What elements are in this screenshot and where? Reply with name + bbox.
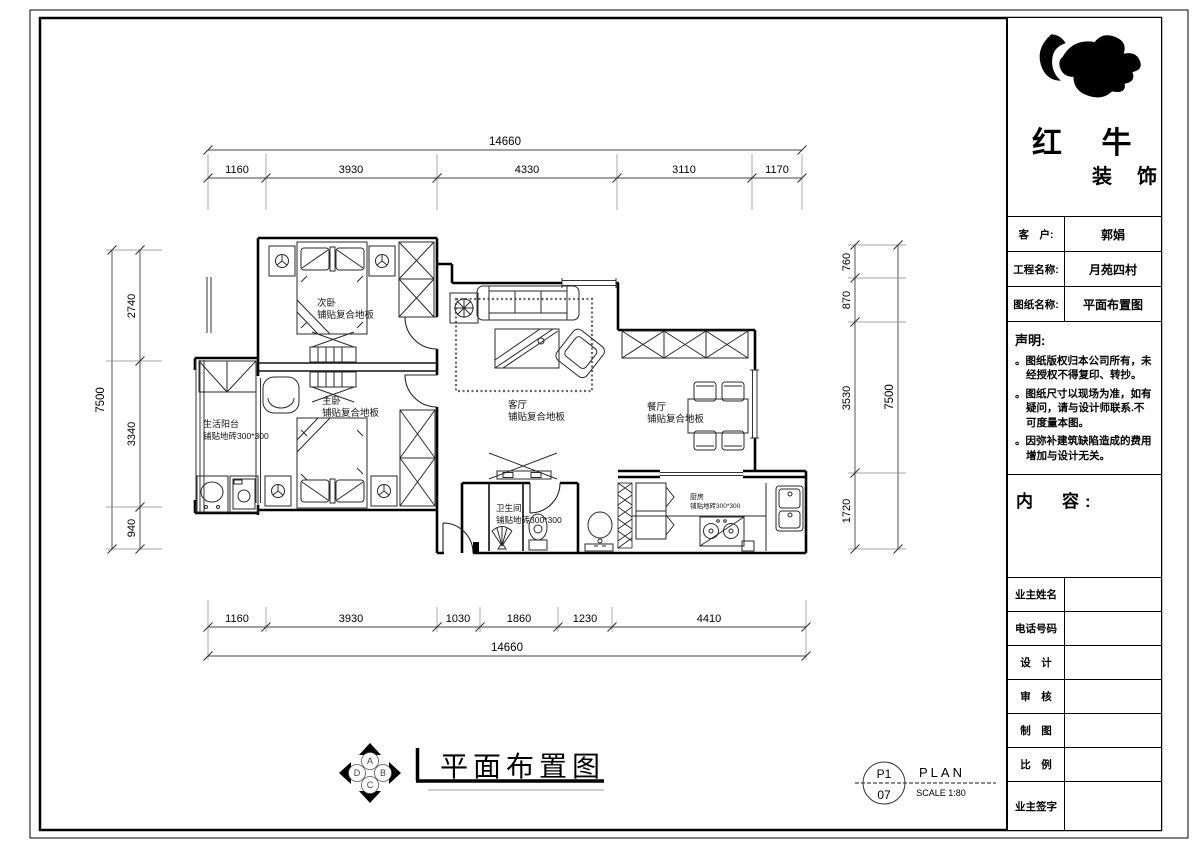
- tv-cabinet: [489, 453, 557, 479]
- dimension-lines: [106, 146, 906, 661]
- signature-row-scale: 比 例: [1008, 748, 1161, 782]
- dim-right-1: 870: [841, 291, 853, 309]
- kitchen-sink: [776, 486, 803, 531]
- field-customer-value: 郭娟: [1065, 217, 1161, 251]
- dining-chair: [694, 431, 716, 450]
- room-floor-bedroom2: 铺贴复合地板: [317, 309, 375, 321]
- dim-top-0: 1160: [225, 164, 249, 176]
- drawing-title-block: 平面布置图: [416, 748, 605, 790]
- signature-row-value: [1065, 680, 1161, 713]
- signature-row-phone: 电话号码: [1008, 612, 1161, 646]
- room-label-living: 客厅: [508, 399, 528, 411]
- dim-top-3: 3110: [672, 164, 696, 176]
- title-block: 红 牛 装 饰 客 户: 郭娟 工程名称: 月苑四村 图纸名称: 平面布置图 声…: [1006, 18, 1161, 830]
- tub-chair: [263, 377, 299, 413]
- signature-row-value: [1065, 612, 1161, 645]
- fridge: [636, 483, 674, 539]
- brand-subname: 装 饰: [1092, 160, 1167, 189]
- nightstand: [371, 476, 397, 506]
- content-section: 内 容:: [1008, 475, 1161, 578]
- bed-double: [297, 418, 367, 508]
- kitchen-fixtures: [632, 483, 803, 551]
- sheet-code: P1: [877, 767, 892, 781]
- statement-section: 声明: 。图纸版权归本公司所有，未经授权不得复印、转抄。 。图纸尺寸以现场为准，…: [1008, 322, 1161, 475]
- room-floor-living: 铺贴复合地板: [508, 411, 566, 423]
- dim-right-total: 7500: [884, 384, 896, 410]
- dim-bottom-total: 14660: [491, 642, 523, 654]
- dim-bottom-1: 3930: [339, 613, 363, 625]
- dining-furniture: [622, 331, 748, 450]
- nightstand: [369, 246, 395, 276]
- field-project-label: 工程名称:: [1008, 252, 1065, 286]
- compass-icon: A B C D: [339, 743, 401, 803]
- hall-washbasin: [588, 512, 612, 546]
- dining-window: [750, 370, 759, 438]
- room-label-balcony: 生活阳台: [203, 418, 239, 429]
- armchair: [554, 327, 607, 380]
- dimension-texts: 14660 1160 3930 4330 3110 1170 1160 3930…: [95, 136, 896, 654]
- dim-top-total: 14660: [489, 136, 521, 148]
- statement-heading: 声明:: [1015, 330, 1154, 349]
- dim-right-2: 3530: [841, 386, 853, 410]
- dim-bottom-2: 1030: [446, 613, 470, 625]
- wardrobe: [400, 410, 435, 506]
- shower-head: [492, 526, 512, 549]
- sofa: [477, 286, 579, 320]
- dim-left-total: 7500: [95, 387, 107, 413]
- room-label-kitchen: 厨房: [690, 492, 704, 501]
- entry-door: [443, 523, 473, 553]
- field-project-value: 月苑四村: [1065, 252, 1161, 286]
- compass-letter-a: A: [367, 756, 373, 766]
- room-floor-dining: 铺贴复合地板: [647, 413, 705, 425]
- dining-chair: [722, 431, 744, 450]
- hatched-column: [618, 483, 632, 548]
- field-customer-label: 客 户:: [1008, 217, 1065, 251]
- statement-item: 。因弥补建筑缺陷造成的费用增加与设计无关。: [1015, 434, 1154, 463]
- brand-name: 红 牛: [1032, 118, 1148, 162]
- desk-pair: [310, 332, 356, 402]
- sheet-page: 07: [877, 788, 891, 802]
- dim-left-2: 940: [126, 519, 138, 537]
- signature-row-drafter: 制 图: [1008, 714, 1161, 748]
- nightstand: [265, 476, 291, 506]
- dim-bottom-4: 1230: [573, 613, 597, 625]
- floor-mat: [585, 544, 613, 551]
- dim-bottom-5: 4410: [697, 613, 721, 625]
- field-sheetname-value: 平面布置图: [1065, 287, 1161, 321]
- nightstand: [269, 246, 295, 276]
- partition-walls: [258, 363, 523, 551]
- bedroom1-furniture: [263, 377, 435, 508]
- dim-top-1: 3930: [339, 164, 363, 176]
- laundry-sink: [197, 476, 228, 512]
- dining-chair: [722, 382, 744, 401]
- field-project: 工程名称: 月苑四村: [1008, 252, 1161, 287]
- signature-row-value: [1065, 714, 1161, 747]
- dimension-ticks: [108, 146, 903, 661]
- statement-item: 。图纸版权归本公司所有，未经授权不得复印、转抄。: [1015, 354, 1154, 383]
- side-table-plant: [450, 293, 478, 323]
- room-floor-balcony: 铺贴地砖300*300: [203, 431, 269, 441]
- room-label-dining: 餐厅: [647, 401, 667, 413]
- signature-row-value: [1065, 748, 1161, 781]
- signature-row-value: [1065, 782, 1161, 831]
- washing-machine: [230, 476, 258, 512]
- dim-right-0: 760: [841, 253, 853, 271]
- field-sheetname: 图纸名称: 平面布置图: [1008, 287, 1161, 322]
- balcony-cabinet: [199, 361, 256, 392]
- compass-letter-d: D: [354, 768, 361, 778]
- room-floor-bedroom1: 铺贴复合地板: [322, 407, 380, 419]
- stove: [700, 517, 744, 546]
- dim-top-2: 4330: [515, 164, 539, 176]
- wardrobe: [399, 242, 434, 317]
- statement-item: 。图纸尺寸以现场为准，如有疑问，请与设计师联系.不可度量本图。: [1015, 387, 1154, 430]
- dim-left-1: 3340: [126, 422, 138, 446]
- drawing-title: 平面布置图: [440, 751, 605, 782]
- footer: A B C D 平面布置图 P1 07 PLAN SCALE 1:80: [339, 743, 996, 804]
- sheet-scale: SCALE 1:80: [916, 788, 966, 798]
- compass-letter-b: B: [380, 768, 386, 778]
- sheet-ref: P1 07 PLAN SCALE 1:80: [855, 762, 996, 804]
- room-label-bathroom: 卫生间: [496, 503, 522, 513]
- coffee-table: [495, 329, 559, 368]
- bathroom-door: [530, 483, 560, 513]
- dim-top-4: 1170: [765, 164, 789, 176]
- dining-chair: [694, 382, 716, 401]
- dim-bottom-3: 1860: [507, 613, 531, 625]
- bedroom2-door: [405, 317, 437, 349]
- logo-section: 红 牛 装 饰: [1008, 18, 1161, 217]
- signature-row-value: [1065, 646, 1161, 679]
- floor-plan: 次卧 铺贴复合地板 主卧 铺贴复合地板 客厅 铺贴复合地板 餐厅 铺贴复合地板 …: [95, 136, 906, 661]
- signature-row-value: [1065, 578, 1161, 611]
- kitchen-window: [660, 473, 743, 476]
- signature-row-owner-name: 业主姓名: [1008, 578, 1161, 612]
- bedroom1-door: [405, 375, 437, 407]
- signature-row-owner-sign: 业主签字: [1008, 782, 1161, 831]
- room-floor-kitchen: 铺贴地砖300*300: [690, 501, 741, 510]
- field-sheetname-label: 图纸名称:: [1008, 287, 1065, 321]
- dim-left-0: 2740: [126, 294, 138, 318]
- room-label-bedroom1: 主卧: [322, 395, 342, 407]
- signature-row-designer: 设 计: [1008, 646, 1161, 680]
- field-customer: 客 户: 郭娟: [1008, 217, 1161, 252]
- dim-right-3: 1720: [841, 499, 853, 523]
- side-window-stub: [207, 277, 211, 333]
- living-furniture: [450, 286, 607, 479]
- sheet-kind: PLAN: [919, 765, 965, 780]
- storage-cabinet: [622, 331, 748, 358]
- bull-logo-icon: [1028, 30, 1144, 118]
- room-label-bedroom2: 次卧: [317, 297, 337, 309]
- signature-row-reviewer: 审 核: [1008, 680, 1161, 714]
- room-floor-bathroom: 铺贴地砖300*300: [496, 515, 562, 525]
- dim-bottom-0: 1160: [225, 613, 249, 625]
- compass-letter-c: C: [367, 780, 374, 790]
